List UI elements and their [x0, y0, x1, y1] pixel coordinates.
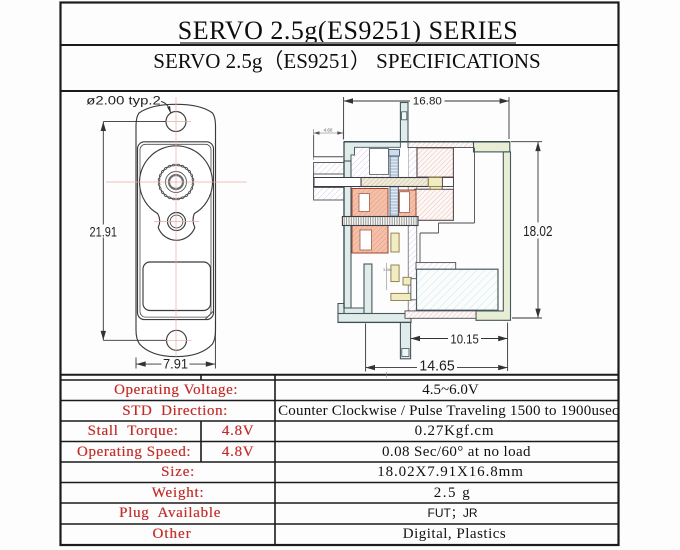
svg-text:16.80: 16.80: [413, 95, 442, 107]
svg-text:18.02: 18.02: [523, 224, 552, 240]
svg-text:14.65: 14.65: [419, 358, 454, 375]
svg-text:21.91: 21.91: [90, 223, 118, 239]
svg-text:10.15: 10.15: [450, 331, 478, 346]
svg-text:7.91: 7.91: [163, 356, 188, 372]
svg-text:4.60: 4.60: [324, 128, 333, 133]
svg-text:ø2.00 typ.2: ø2.00 typ.2: [86, 96, 161, 108]
svg-text:3.6M: 3.6M: [383, 267, 392, 272]
